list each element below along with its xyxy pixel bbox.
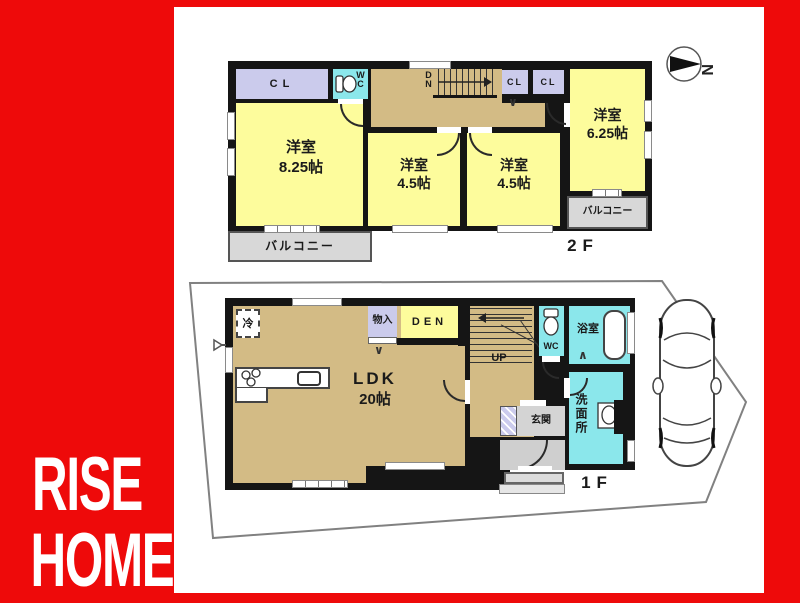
room-size: 4.5帖	[469, 174, 559, 192]
door-opening	[520, 400, 546, 406]
room-size: 6.25帖	[570, 124, 645, 142]
bathtub-icon	[603, 310, 626, 360]
room-name: 洋室	[370, 156, 458, 174]
window	[627, 440, 635, 462]
bath-label: 浴室	[571, 320, 605, 336]
floor1-entrance: 玄関	[517, 406, 565, 436]
floor1-den: DEN	[401, 306, 458, 338]
fridge-label: 冷	[238, 311, 258, 337]
floor2-balcony-left: バルコニー	[228, 231, 372, 262]
closet-label: CL	[236, 69, 328, 99]
window-balcony	[264, 225, 320, 233]
window-balcony	[592, 189, 622, 197]
toilet-icon	[335, 73, 357, 95]
folding-door-mark: ∧	[578, 348, 588, 362]
stairs-down-label: DN	[423, 71, 434, 90]
window	[385, 462, 445, 470]
balcony-label: バルコニー	[230, 233, 370, 259]
room-name: LDK	[320, 368, 430, 390]
door-opening	[465, 380, 470, 404]
kitchen-counter-leg	[235, 388, 268, 403]
room-4-5-left-label: 洋室 4.5帖	[370, 156, 458, 192]
entrance-porch-step	[504, 472, 564, 484]
ldk-label: LDK 20帖	[320, 368, 430, 410]
stairs-up-label: UP	[482, 352, 516, 364]
window	[409, 61, 451, 69]
window	[225, 347, 233, 373]
floorplan-flyer: { "brand": { "line1": "RISE", "line2": "…	[0, 0, 800, 600]
stairs-direction-arrow-icon	[436, 74, 494, 90]
closet-label: CL	[502, 70, 528, 94]
room-size: 8.25帖	[246, 158, 356, 178]
toilet-icon	[541, 308, 561, 338]
storage-label: 物入	[368, 306, 397, 335]
wall	[397, 338, 458, 345]
compass-north-label: N	[698, 64, 715, 76]
shoe-closet	[500, 406, 517, 436]
wc-label: WC	[538, 341, 564, 351]
window	[292, 298, 342, 306]
floor2-closet-left: CL	[236, 69, 328, 99]
floor2-balcony-right: バルコニー	[567, 196, 648, 229]
kitchen-sink-icon	[297, 371, 321, 386]
brand-line1: RISE	[30, 447, 143, 523]
brand-logo: RISE HOME	[30, 447, 143, 599]
window	[644, 131, 652, 159]
folding-door-mark: ∨	[508, 95, 518, 109]
floor1-label: 1F	[566, 473, 628, 493]
room-6-25-label: 洋室 6.25帖	[570, 106, 645, 142]
room-name: 洋室	[570, 106, 645, 124]
floor2-label: 2F	[545, 236, 621, 256]
window	[227, 148, 235, 176]
window-balcony	[292, 480, 348, 488]
folding-door-mark: ∨	[374, 343, 384, 357]
floor1-storage: 物入	[368, 306, 397, 337]
fridge-space: 冷	[236, 309, 260, 338]
wall	[614, 400, 630, 434]
room-name: 洋室	[246, 138, 356, 158]
entrance-label: 玄関	[517, 406, 565, 436]
closet-label: CL	[533, 70, 564, 94]
window	[627, 312, 635, 354]
room-8-25-label: 洋室 8.25帖	[246, 138, 356, 177]
room-size: 20帖	[320, 390, 430, 410]
compass: N	[664, 42, 728, 86]
floor2-closet-mid: CL	[502, 70, 528, 94]
outdoor-faucet-icon	[212, 338, 226, 352]
brand-line2: HOME	[30, 523, 143, 599]
room-4-5-right-label: 洋室 4.5帖	[469, 156, 559, 192]
room-name: 洋室	[469, 156, 559, 174]
stairs-direction-arrow-icon	[474, 310, 528, 326]
wc-label: WC	[355, 71, 366, 90]
den-label: DEN	[401, 306, 458, 338]
stove-burners-icon	[240, 368, 266, 388]
window	[497, 225, 553, 233]
window	[644, 100, 652, 122]
entrance-porch-step	[499, 484, 565, 494]
wall	[458, 298, 470, 346]
room-size: 4.5帖	[370, 174, 458, 192]
balcony-label: バルコニー	[569, 198, 646, 226]
floor1-ldk-extension	[233, 430, 366, 483]
car-icon	[650, 296, 724, 474]
window	[227, 112, 235, 140]
floor2-closet-right: CL	[533, 70, 564, 94]
window	[392, 225, 448, 233]
